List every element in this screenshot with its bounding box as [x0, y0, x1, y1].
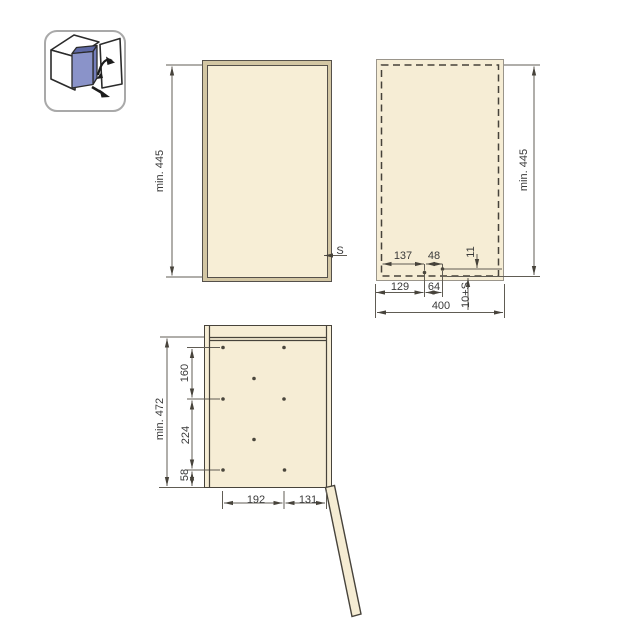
dim-label-11: 11	[464, 241, 478, 263]
panel-drilling-view	[376, 59, 504, 281]
dim-label-137: 137	[386, 249, 420, 263]
dim-label-131: 131	[291, 493, 325, 507]
dim-label-48: 48	[421, 249, 447, 263]
panel-front-view-opening	[207, 65, 328, 278]
dim-label-192: 192	[239, 493, 273, 507]
dim-label-58: 58	[178, 464, 192, 486]
dim-label-drilling-height: min. 445	[517, 140, 531, 200]
dim-label-224: 224	[179, 420, 193, 450]
dim-label-side-height: min. 472	[153, 389, 167, 449]
pull-out-unit-icon	[44, 30, 126, 112]
dim-label-10-plus-s: 10+S	[459, 277, 473, 313]
dim-label-64: 64	[421, 280, 447, 294]
panel-side-view	[204, 325, 332, 488]
dim-label-front-height: min. 445	[153, 141, 167, 201]
dim-label-129: 129	[383, 280, 417, 294]
dim-label-400: 400	[424, 299, 458, 313]
pull-out-unit-icon-drawing	[46, 32, 124, 110]
dim-label-side-thickness: S	[330, 244, 350, 258]
panel-front-view	[202, 60, 332, 282]
pull-out-arrowhead	[100, 90, 111, 98]
dim-label-160: 160	[178, 358, 192, 388]
technical-diagram: min. 445 S min. 445 137 48 11 129 64 10+…	[0, 0, 630, 630]
bin-front-face	[72, 52, 93, 89]
open-door	[326, 486, 362, 617]
